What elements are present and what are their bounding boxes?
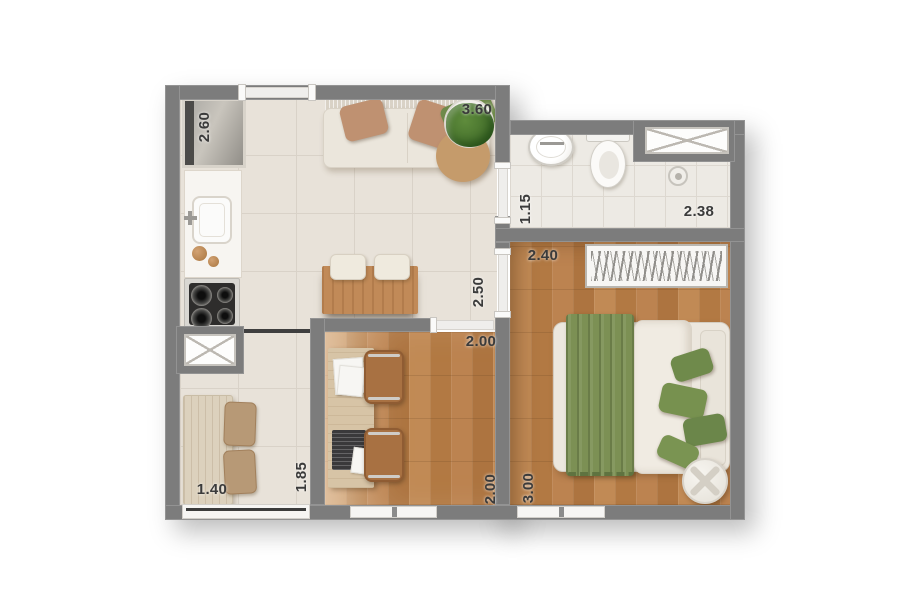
floor-plan: 2.60 3.60 1.15 2.38 2.40 3.00 2.50 2.00 … — [0, 0, 915, 600]
basin-faucet-icon — [540, 142, 564, 145]
toilet-icon — [590, 140, 626, 188]
bathroom-door-jamb — [494, 217, 511, 224]
office-window — [350, 506, 437, 518]
dining-window — [182, 504, 310, 519]
bathroom-door — [498, 168, 508, 218]
kitchen-decor-pot-small — [208, 256, 219, 267]
entry-door-jamb — [238, 84, 246, 101]
bed-blanket — [566, 314, 634, 476]
dim-kitchen-length: 2.60 — [196, 105, 212, 149]
bathroom-window — [645, 127, 729, 154]
dim-living-depth: 2.50 — [470, 270, 486, 314]
stool — [374, 254, 410, 280]
bedroom-door — [498, 254, 508, 312]
wall-left — [165, 85, 180, 520]
wardrobe-icon — [585, 244, 728, 288]
wall-living-bathroom — [495, 85, 510, 168]
burner — [191, 285, 212, 306]
sliding-partition — [244, 329, 310, 333]
dim-bedroom-width: 2.40 — [521, 247, 565, 263]
dining-chair — [223, 401, 257, 446]
round-side-table-icon — [682, 458, 728, 504]
kitchen-faucet-knob — [188, 211, 192, 225]
bedroom-door-jamb — [494, 248, 511, 255]
burner — [217, 287, 233, 303]
burner — [217, 308, 233, 324]
office-door — [434, 320, 494, 330]
cooktop-icon — [184, 278, 240, 330]
office-chair — [364, 428, 404, 482]
dim-bedroom-length: 3.00 — [520, 466, 536, 510]
entry-door-jamb — [308, 84, 316, 101]
wall-top — [165, 85, 510, 100]
papers-icon — [337, 365, 366, 398]
wall-office-left — [310, 318, 325, 505]
office-door-jamb — [430, 317, 437, 333]
bedroom-door-jamb — [494, 311, 511, 318]
shower-drain-icon — [668, 166, 688, 186]
wall-office-top — [310, 318, 432, 332]
dim-dining-length: 1.85 — [293, 455, 309, 499]
entry-door — [245, 87, 309, 98]
sink-icon — [192, 196, 232, 244]
bathroom-door-jamb — [494, 162, 511, 169]
shaft-window — [184, 334, 236, 366]
fridge-icon — [182, 98, 246, 168]
stool — [330, 254, 366, 280]
dim-dining-width: 1.40 — [190, 481, 234, 497]
dim-bathroom-entry-depth: 1.15 — [517, 187, 533, 231]
dim-office-length: 2.00 — [482, 467, 498, 511]
fridge-handle — [185, 101, 194, 165]
dim-bathroom-width: 2.38 — [677, 203, 721, 219]
wall-right — [730, 120, 745, 520]
office-chair — [364, 350, 404, 404]
dim-living-width: 3.60 — [455, 101, 499, 117]
kitchen-decor-pot — [192, 246, 207, 261]
dim-office-width: 2.00 — [459, 333, 503, 349]
